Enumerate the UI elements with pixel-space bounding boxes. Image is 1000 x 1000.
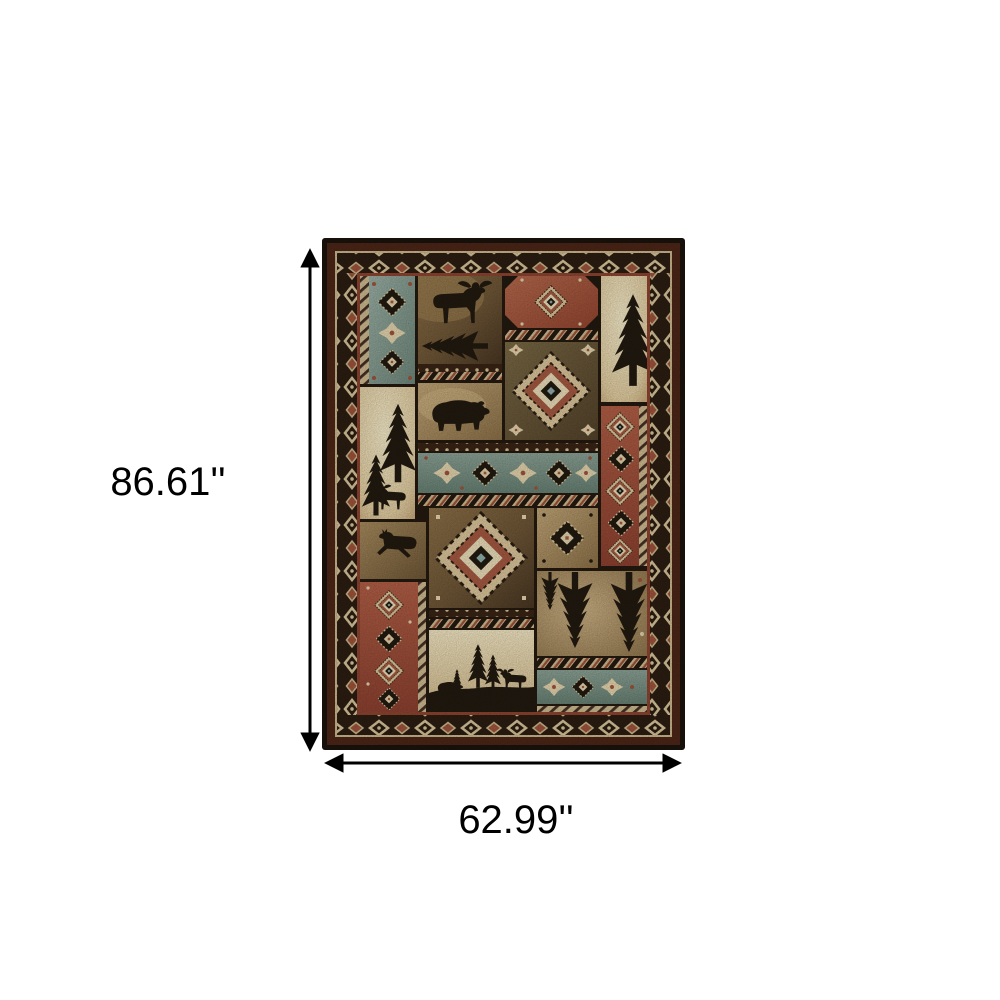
rug-texture-overlay: [322, 238, 685, 750]
rug-product-photo: [322, 238, 685, 750]
rug-image: [322, 238, 685, 750]
height-dimension-label: 86.61'': [88, 462, 248, 502]
product-dimensions-figure: 86.61'' 62.99'': [0, 0, 1000, 1000]
width-dimension-label: 62.99'': [436, 800, 596, 840]
